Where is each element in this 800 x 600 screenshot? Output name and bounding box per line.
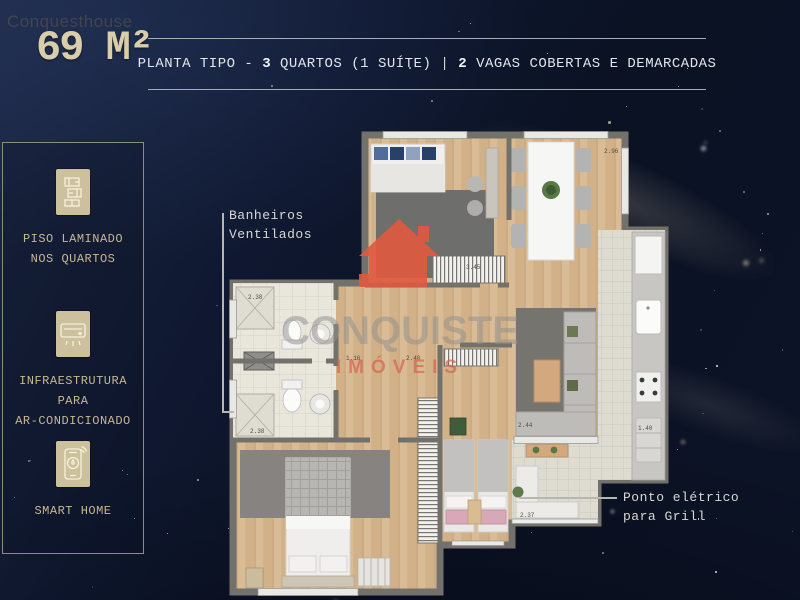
feature-item-ar-condicionado: INFRAESTRUTURA PARA AR-CONDICIONADO xyxy=(3,311,143,431)
feature-item-piso-laminado: PISO LAMINADO NOS QUARTOS xyxy=(3,169,143,269)
parking-count: 2 xyxy=(458,56,467,72)
twin-closet-side xyxy=(418,398,438,543)
grill-note-line: Ponto elétrico xyxy=(623,488,739,507)
feature-label-line: PISO LAMINADO xyxy=(3,229,143,249)
grill-note-line: para Grill xyxy=(623,507,739,526)
feature-label-line: INFRAESTRUTURA xyxy=(3,371,143,391)
feature-label-line: AR-CONDICIONADO xyxy=(3,411,143,431)
floor-plan: 2.96 3.45 2.38 1.16 2.40 2.38 2.44 1.40 … xyxy=(228,128,672,596)
dimension-label: 2.38 xyxy=(248,294,263,301)
dining-area xyxy=(511,142,591,260)
grill-leader-line xyxy=(519,497,617,499)
air-conditioner-icon xyxy=(56,311,90,357)
page: Conquesthouse 69 M² PLANTA TIPO - 3 QUAR… xyxy=(0,0,800,600)
dimension-label: 3.45 xyxy=(466,264,481,271)
bathrooms-bracket-line xyxy=(222,213,224,412)
grill-note: Ponto elétrico para Grill xyxy=(623,488,739,526)
bathrooms-note: Banheiros Ventilados xyxy=(229,206,312,244)
smart-home-icon xyxy=(56,441,90,487)
kitchen xyxy=(632,232,665,480)
bedrooms-count: 3 xyxy=(262,56,271,72)
feature-label-line: PARA xyxy=(3,391,143,411)
bathrooms-note-line: Ventilados xyxy=(229,225,312,244)
feature-sidebar: PISO LAMINADO NOS QUARTOS INFRAESTRUTURA xyxy=(2,142,144,554)
brand-watermark-subtext: IMÓVEIS xyxy=(336,356,464,378)
plan-title: PLANTA TIPO - 3 QUARTOS (1 SUÍTE)|2 VAGA… xyxy=(148,38,706,90)
dimension-label: 2.96 xyxy=(604,148,619,155)
parking-label: VAGAS COBERTAS E DEMARCADAS xyxy=(467,56,716,72)
dimension-label: 1.40 xyxy=(638,425,653,432)
feature-label-line: NOS QUARTOS xyxy=(3,249,143,269)
dimension-label: 2.37 xyxy=(520,512,535,519)
laminate-floor-icon xyxy=(56,169,90,215)
title-separator: | xyxy=(440,56,449,72)
feature-label-line: SMART HOME xyxy=(3,501,143,521)
title-prefix: PLANTA TIPO - xyxy=(138,56,263,72)
bedrooms-label: QUARTOS (1 SUÍTE) xyxy=(271,56,431,72)
brand-watermark-text: CONQUISTE xyxy=(281,309,519,353)
bathrooms-note-line: Banheiros xyxy=(229,206,312,225)
feature-item-smart-home: SMART HOME xyxy=(3,441,143,521)
bathrooms-bracket-tick xyxy=(222,411,234,413)
dimension-label: 2.38 xyxy=(250,428,265,435)
dimension-label: 2.44 xyxy=(518,422,533,429)
